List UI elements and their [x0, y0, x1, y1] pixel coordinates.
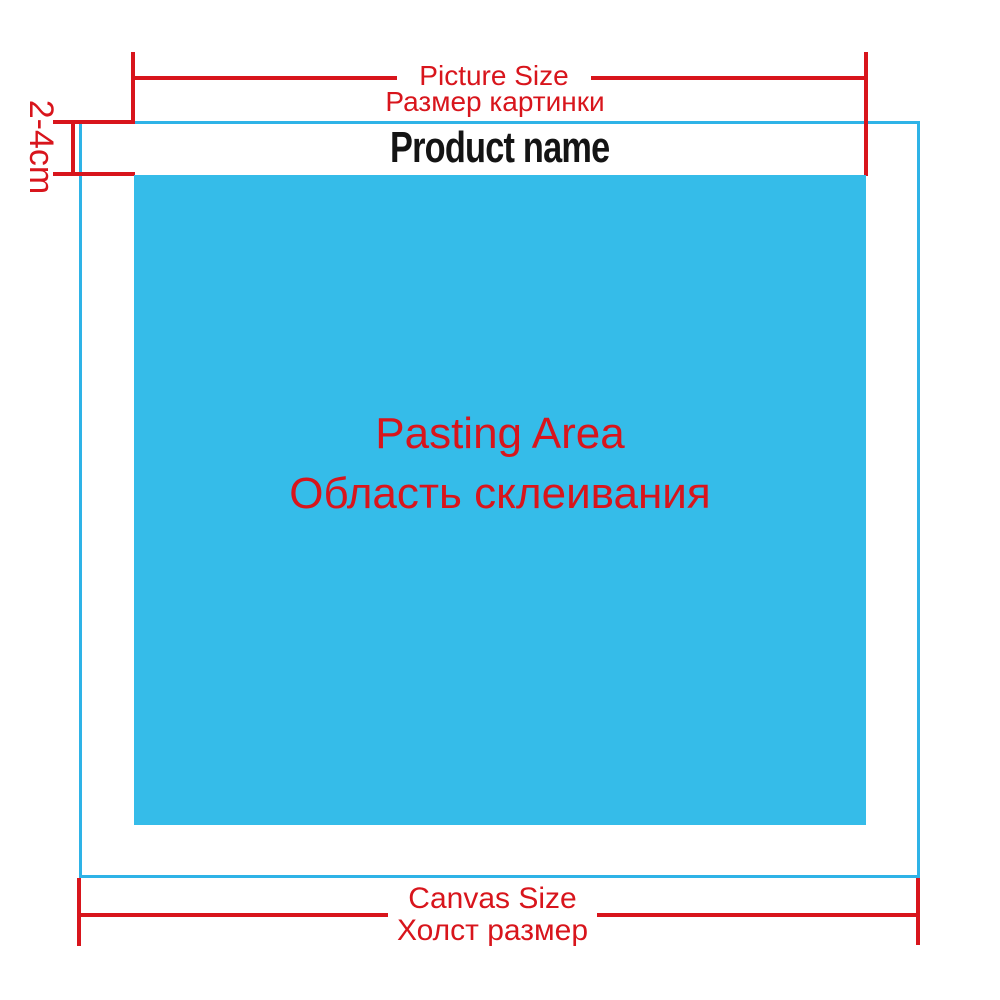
picture-size-line-left [131, 76, 397, 80]
canvas-size-left-tick [77, 878, 81, 946]
picture-size-label-ru: Размер картинки [350, 88, 640, 116]
canvas-size-line-right [597, 913, 920, 917]
picture-size-line-right [591, 76, 868, 80]
margin-dim-line [71, 120, 75, 176]
picture-size-left-tick [131, 52, 135, 122]
margin-dim-bottom-tick [53, 172, 135, 176]
margin-dim-top-tick [53, 120, 135, 124]
product-name-text: Product name [390, 123, 609, 173]
margin-dim-label: 2-4cm [21, 92, 61, 202]
product-name: Product name [134, 123, 866, 173]
canvas-size-line-left [77, 913, 388, 917]
size-diagram: Picture Size Размер картинки 2-4cm Produ… [0, 0, 1000, 1000]
pasting-area-label-ru: Область склеивания [289, 464, 710, 524]
canvas-size-label-ru: Холст размер [370, 916, 615, 946]
pasting-area-label-en: Pasting Area [375, 404, 625, 464]
canvas-size-right-tick [916, 878, 920, 945]
canvas-size-label-en: Canvas Size [388, 884, 597, 914]
pasting-area: Pasting Area Область склеивания [134, 175, 866, 825]
